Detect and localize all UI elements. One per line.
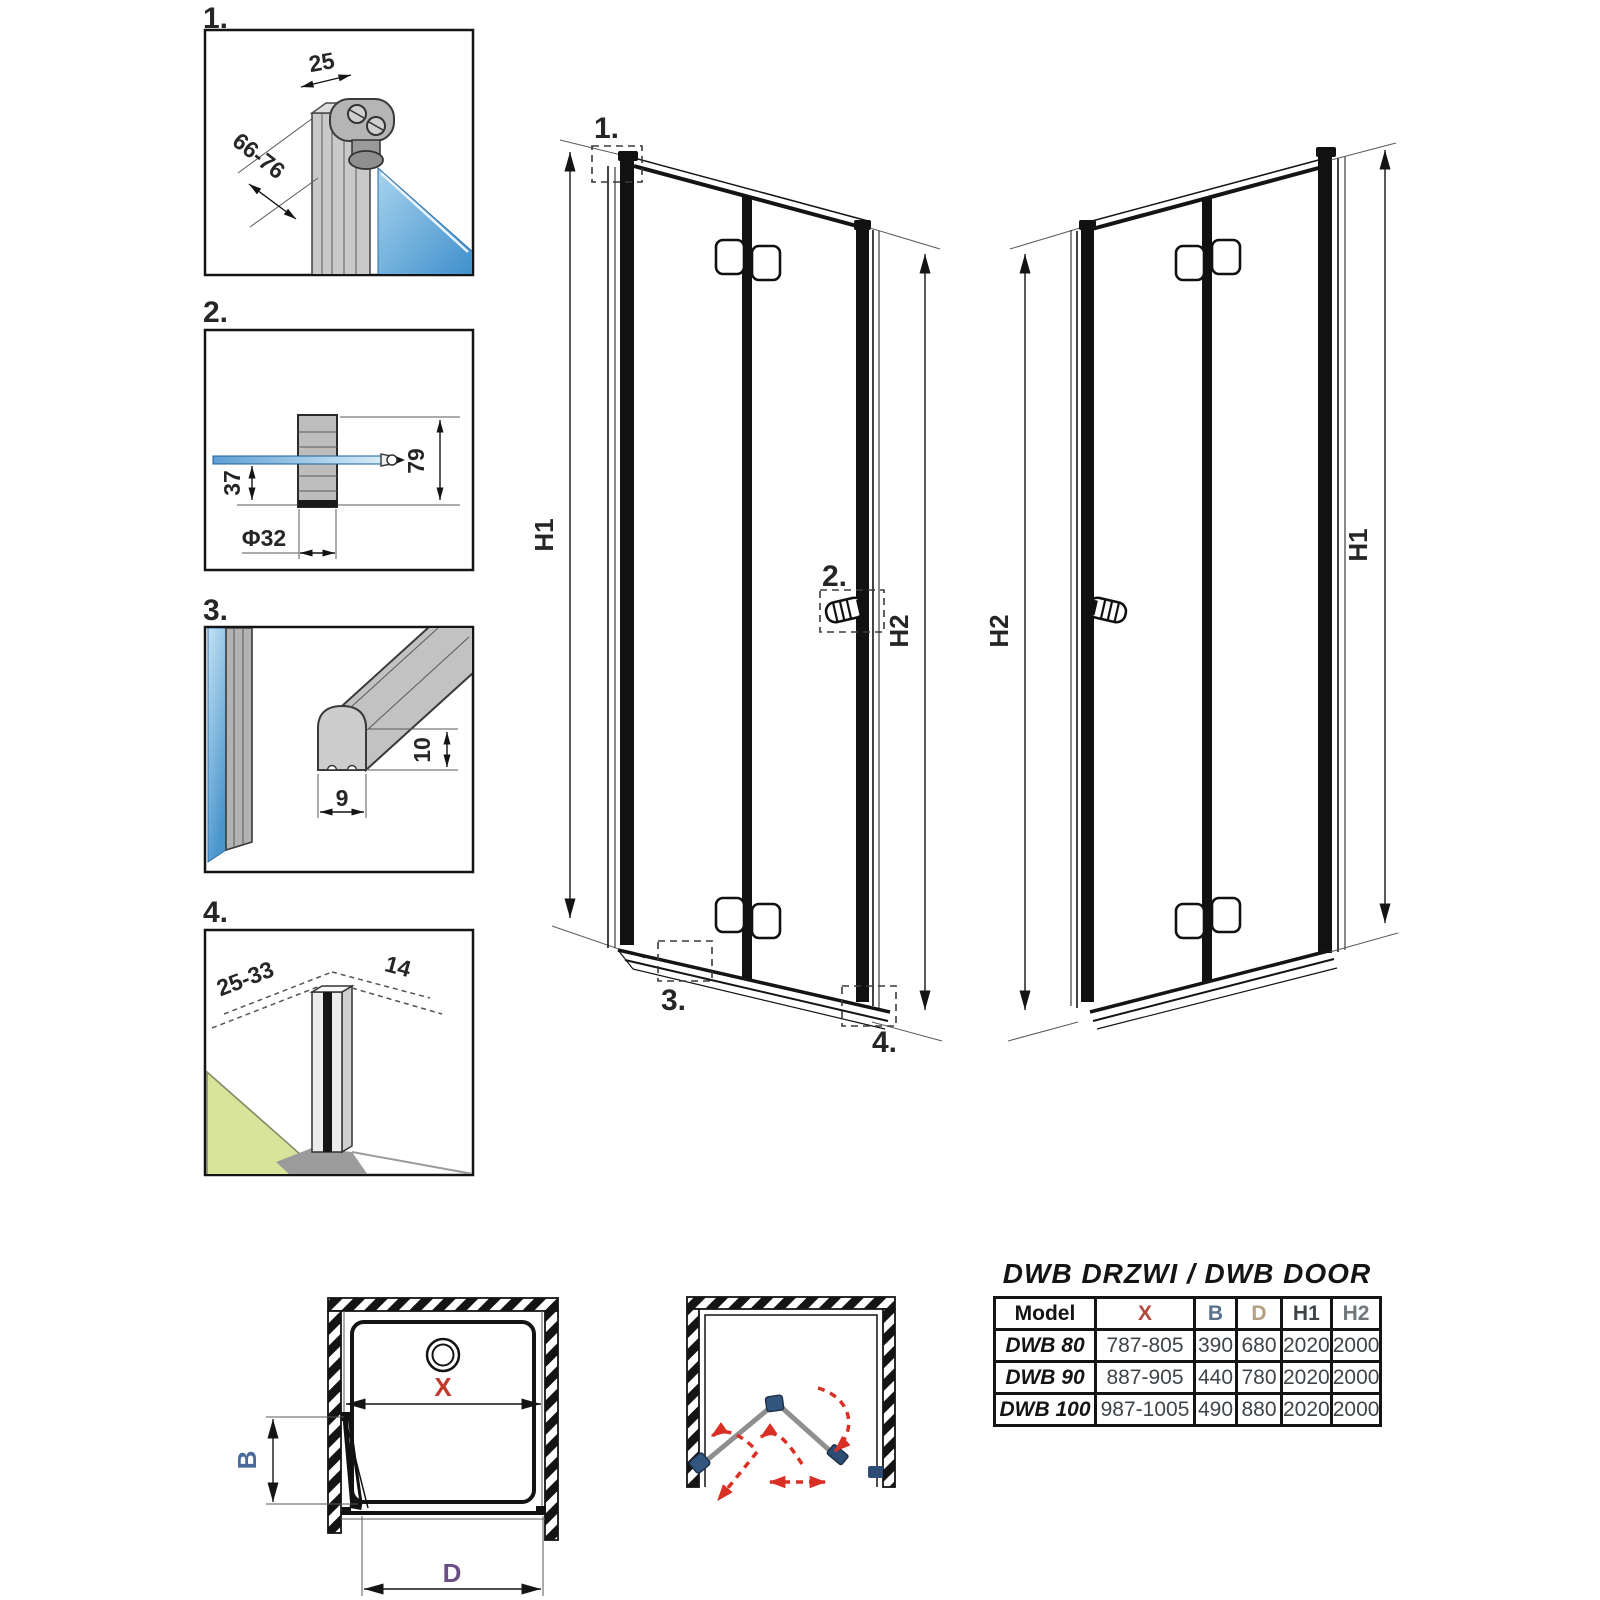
- door-end-cap: [826, 1444, 848, 1465]
- table-row: DWB 100 987-1005 490 880 2020 2000: [995, 1394, 1381, 1426]
- seal-notch: [328, 766, 337, 771]
- b-cell: 440: [1195, 1362, 1237, 1394]
- detail-3-label: 3.: [203, 594, 228, 627]
- hinge-clamp: [1176, 246, 1204, 280]
- hinge-pin: [1204, 265, 1212, 273]
- d-cell: 880: [1237, 1394, 1282, 1426]
- callout-3: 3.: [661, 984, 686, 1017]
- floor-line: [1330, 933, 1398, 952]
- h2-cell: 2000: [1331, 1394, 1381, 1426]
- h2-cell: 2000: [1331, 1330, 1381, 1362]
- bottom-rail: [1097, 968, 1337, 1029]
- glass-panel: [208, 628, 226, 862]
- h1-cell: 2020: [1282, 1362, 1332, 1394]
- h2-cell: 2000: [1331, 1362, 1381, 1394]
- spec-sheet: 1. 25 66-76 2.: [0, 0, 1600, 1600]
- d-cell: 780: [1237, 1362, 1282, 1394]
- edge-seal-strip: [226, 628, 252, 850]
- detail-4-bottom-profile: 4. 25-33 14: [203, 896, 473, 1175]
- ext-line: [1331, 143, 1396, 160]
- header-b: B: [1195, 1298, 1237, 1330]
- hinge-clamp: [1212, 240, 1240, 274]
- fold-hinge: [765, 1395, 784, 1412]
- header-d: D: [1237, 1298, 1282, 1330]
- header-model: Model: [995, 1298, 1096, 1330]
- table-row: DWB 80 787-805 390 680 2020 2000: [995, 1330, 1381, 1362]
- dim-h1-label: H1: [529, 518, 559, 551]
- fixed-glass-clamp: [620, 158, 634, 945]
- detail-4-label: 4.: [203, 896, 228, 929]
- detail-1-wall-profile: 1. 25 66-76: [203, 2, 473, 275]
- hinge-pin: [744, 265, 752, 273]
- dim-d-label: D: [443, 1558, 462, 1588]
- fold-joint-bar: [742, 196, 752, 980]
- callout-1: 1.: [594, 112, 619, 145]
- hinge-clamp: [716, 898, 744, 932]
- callout-4: 4.: [872, 1026, 897, 1059]
- swing-arrow: [718, 1452, 757, 1500]
- model-cell: DWB 100: [995, 1394, 1096, 1426]
- swing-arrow: [761, 1433, 802, 1464]
- hinge-clamp: [752, 904, 780, 938]
- table-title: DWB DRZWI / DWB DOOR: [980, 1258, 1394, 1290]
- glass-panel: [213, 456, 381, 464]
- hinge-clamp: [752, 246, 780, 280]
- hinge-pin: [744, 923, 752, 931]
- fold-joint-bar: [1202, 198, 1212, 982]
- hatched-wall-left: [328, 1311, 341, 1533]
- spec-table: Model X B D H1 H2 DWB 80 787-805 390 680…: [993, 1296, 1382, 1427]
- ext-line: [1008, 1022, 1078, 1041]
- hinge-pin: [1204, 251, 1212, 259]
- bottom-rail: [1093, 959, 1334, 1021]
- wall-bracket: [868, 1466, 883, 1478]
- seal-notch: [348, 766, 357, 771]
- x-cell: 787-805: [1096, 1330, 1195, 1362]
- hinge-pin: [744, 909, 752, 917]
- dim-profile-width: 25: [307, 47, 337, 77]
- header-h1: H1: [1282, 1298, 1332, 1330]
- dim-h2-label: H2: [984, 614, 1014, 647]
- dim-h2-label: H2: [884, 614, 914, 647]
- model-cell: DWB 80: [995, 1330, 1096, 1362]
- hinge-pin: [1204, 909, 1212, 917]
- spec-table-section: DWB DRZWI / DWB DOOR Model X B D H1 H2 D…: [980, 1258, 1400, 1427]
- top-bracket: [1316, 147, 1336, 157]
- glass-edge-stripe: [323, 992, 332, 1152]
- header-h2: H2: [1331, 1298, 1381, 1330]
- dim-h1-label: H1: [1343, 528, 1373, 561]
- fixing-pin-ring: [387, 455, 397, 465]
- reverse-elevation: H2 H1: [984, 143, 1398, 1041]
- dim-b-label: B: [232, 1451, 262, 1470]
- model-cell: DWB 90: [995, 1362, 1096, 1394]
- plan-view-open: [687, 1297, 895, 1500]
- callout-2: 2.: [822, 560, 847, 593]
- dim-knob-height: 79: [403, 448, 429, 474]
- table-header-row: Model X B D H1 H2: [995, 1298, 1381, 1330]
- x-cell: 887-905: [1096, 1362, 1195, 1394]
- hinge-clamp: [1212, 898, 1240, 932]
- knob-base: [298, 500, 337, 507]
- seal-bar-face: [318, 706, 366, 770]
- hatched-wall-right: [883, 1309, 895, 1487]
- detail-2-knob-section: 2. 37 79 Φ32: [203, 296, 473, 570]
- h1-cell: 2020: [1282, 1330, 1332, 1362]
- b-cell: 390: [1195, 1330, 1237, 1362]
- b-cell: 490: [1195, 1394, 1237, 1426]
- hinge-pin: [744, 251, 752, 259]
- enclosure-outline: [705, 1315, 877, 1487]
- hatched-wall-top: [687, 1297, 895, 1309]
- hinge-clamp: [1176, 904, 1204, 938]
- drain-inner: [433, 1345, 454, 1366]
- top-bracket: [618, 151, 638, 161]
- dim-knob-diameter: Φ32: [242, 525, 286, 551]
- plan-view-closed: X B D: [232, 1298, 558, 1596]
- rail-end-cap: [536, 1506, 546, 1514]
- front-elevation: H1 H2 1. 2. 3. 4.: [529, 112, 942, 1059]
- dim-seal-width: 9: [336, 785, 349, 811]
- detail-2-label: 2.: [203, 296, 228, 329]
- dim-x-label: X: [434, 1372, 452, 1402]
- ext-line: [870, 228, 940, 249]
- header-x: X: [1096, 1298, 1195, 1330]
- table-row: DWB 90 887-905 440 780 2020 2000: [995, 1362, 1381, 1394]
- d-cell: 680: [1237, 1330, 1282, 1362]
- profile-side-face: [342, 986, 352, 1152]
- dim-seal-height: 10: [409, 737, 435, 763]
- x-cell: 987-1005: [1096, 1394, 1195, 1426]
- fixed-glass-clamp: [1318, 153, 1332, 953]
- detail-3-seal-profile: 3. 10 9: [203, 594, 473, 872]
- pivot-ring: [349, 151, 383, 169]
- dim-knob-offset: 37: [219, 470, 245, 496]
- h1-cell: 2020: [1282, 1394, 1332, 1426]
- hatched-wall-top: [328, 1298, 558, 1311]
- top-bracket: [854, 220, 871, 230]
- hatched-wall-right: [545, 1311, 558, 1540]
- hinge-clamp: [716, 240, 744, 274]
- ext-line: [1010, 228, 1080, 249]
- hinge-pin: [1204, 923, 1212, 931]
